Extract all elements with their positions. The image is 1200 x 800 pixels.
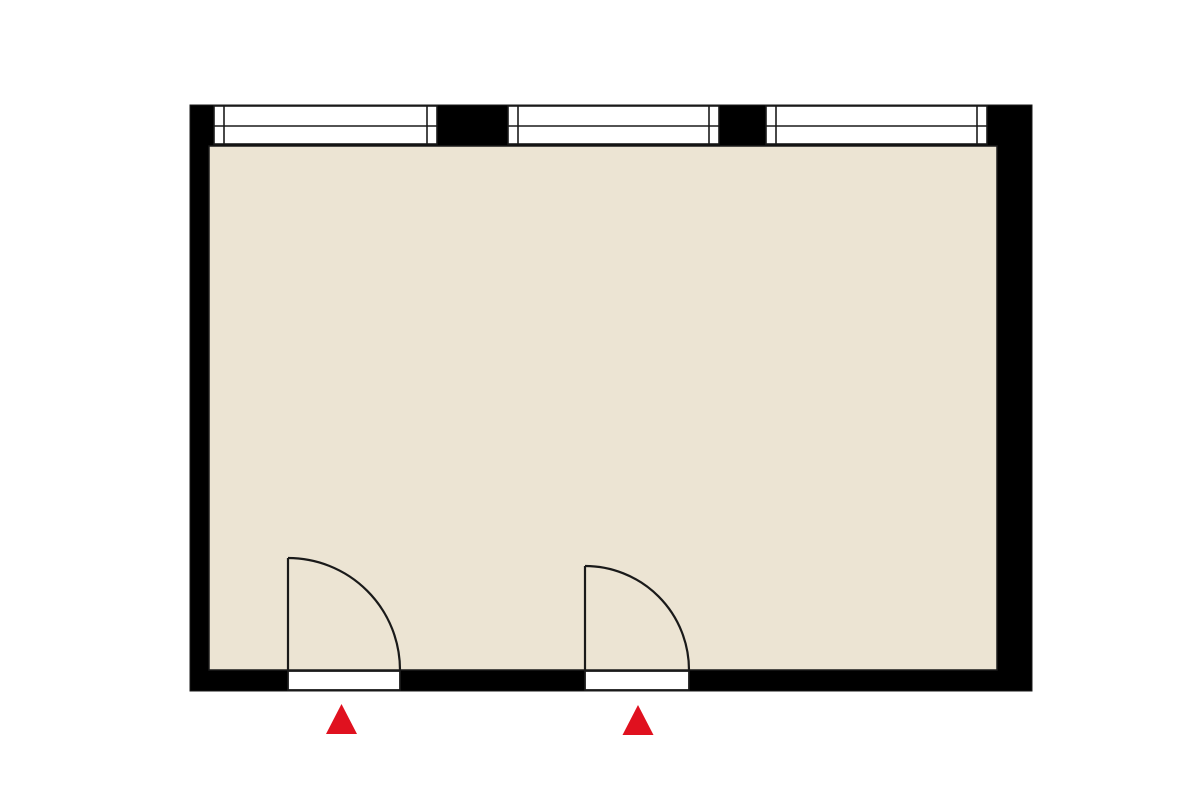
window-3 xyxy=(766,106,987,144)
door-1-opening xyxy=(288,671,400,690)
door-2-opening xyxy=(585,671,689,690)
floor-plan-svg xyxy=(0,0,1200,800)
floor xyxy=(209,146,997,670)
window-1 xyxy=(214,106,437,144)
entrance-marker-2 xyxy=(623,705,654,735)
floor-plan-canvas xyxy=(0,0,1200,800)
window-2 xyxy=(508,106,719,144)
entrance-marker-1 xyxy=(326,704,357,734)
